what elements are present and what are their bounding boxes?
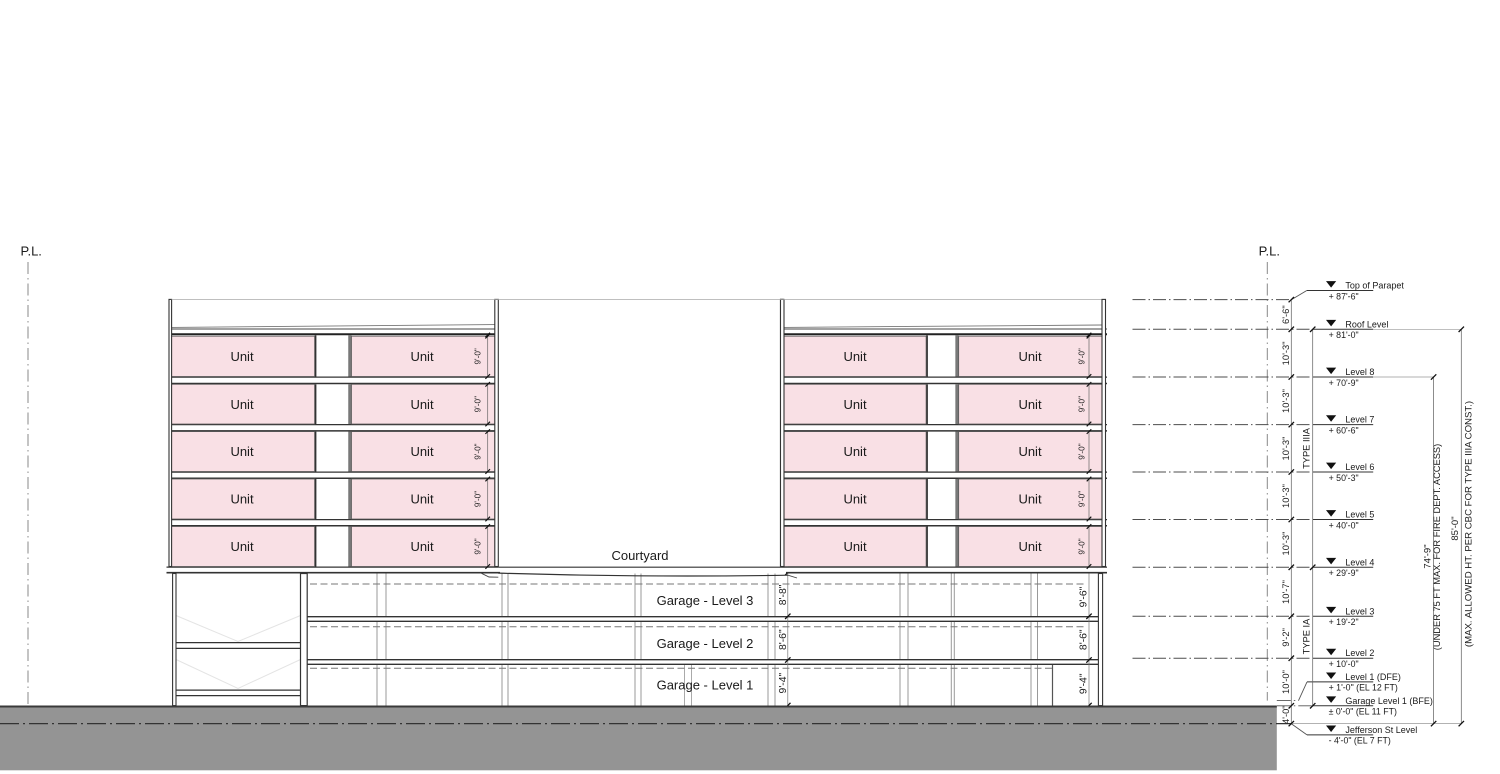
svg-text:8'-6": 8'-6" [778,629,789,650]
svg-text:Unit: Unit [843,397,867,412]
svg-text:Top of Parapet: Top of Parapet [1345,281,1404,291]
svg-text:10'-3": 10'-3" [1280,532,1291,556]
svg-text:9'-0": 9'-0" [1078,538,1087,554]
svg-text:+ 19'-2": + 19'-2" [1329,617,1359,627]
svg-text:10'-7": 10'-7" [1280,580,1291,604]
svg-text:9'-2": 9'-2" [1280,628,1291,647]
svg-text:Level 7: Level 7 [1345,415,1374,425]
svg-text:P.L.: P.L. [1259,244,1280,259]
svg-text:9'-0": 9'-0" [474,491,483,507]
svg-text:+ 60'-6": + 60'-6" [1329,425,1359,435]
svg-text:10'-3": 10'-3" [1280,437,1291,461]
svg-text:Level 3: Level 3 [1345,606,1374,616]
svg-text:9'-0": 9'-0" [1078,396,1087,412]
svg-text:Level 5: Level 5 [1345,510,1374,520]
svg-text:10'-3": 10'-3" [1280,389,1291,413]
svg-text:Unit: Unit [843,349,867,364]
svg-text:Level 6: Level 6 [1345,462,1374,472]
svg-text:9'-0": 9'-0" [474,396,483,412]
svg-text:+ 70'-9": + 70'-9" [1329,378,1359,388]
svg-text:Unit: Unit [843,492,867,507]
svg-text:Garage - Level 1: Garage - Level 1 [657,678,754,693]
svg-text:Unit: Unit [230,349,254,364]
svg-text:9'-4": 9'-4" [778,672,789,693]
svg-text:9'-0": 9'-0" [1078,443,1087,459]
svg-text:Unit: Unit [410,539,434,554]
svg-text:Level 8: Level 8 [1345,367,1374,377]
svg-text:9'-0": 9'-0" [1078,491,1087,507]
svg-text:Unit: Unit [410,492,434,507]
svg-text:9'-0": 9'-0" [1078,348,1087,364]
svg-text:9'-0": 9'-0" [474,538,483,554]
svg-text:Level 2: Level 2 [1345,648,1374,658]
svg-text:Unit: Unit [230,492,254,507]
svg-text:8'-6": 8'-6" [1079,629,1090,650]
svg-text:Roof Level: Roof Level [1345,319,1388,329]
svg-text:9'-4": 9'-4" [1079,673,1090,694]
svg-text:+ 29'-9": + 29'-9" [1329,568,1359,578]
svg-text:+ 10'-0": + 10'-0" [1329,659,1359,669]
svg-text:P.L.: P.L. [20,244,41,259]
svg-text:Courtyard: Courtyard [611,548,668,563]
svg-text:- 4'-0" (EL 7 FT): - 4'-0" (EL 7 FT) [1329,736,1391,746]
svg-text:10'-3": 10'-3" [1280,484,1291,508]
svg-text:9'-0": 9'-0" [474,348,483,364]
svg-text:Unit: Unit [843,444,867,459]
svg-text:85'-0": 85'-0" [1450,516,1461,540]
svg-text:10'-3": 10'-3" [1280,341,1291,365]
svg-text:+ 1'-0" (EL 12 FT): + 1'-0" (EL 12 FT) [1329,683,1398,693]
svg-text:Unit: Unit [1018,492,1042,507]
svg-text:(UNDER 75 FT MAX. FOR FIRE DEP: (UNDER 75 FT MAX. FOR FIRE DEPT. ACCESS) [1432,444,1442,650]
svg-text:9'-6": 9'-6" [1079,586,1090,607]
svg-text:+ 40'-0": + 40'-0" [1329,520,1359,530]
svg-text:Garage Level 1 (BFE): Garage Level 1 (BFE) [1345,696,1433,706]
svg-text:+ 87'-6": + 87'-6" [1329,291,1359,301]
svg-text:TYPE IIIA: TYPE IIIA [1301,427,1311,469]
svg-text:+ 50'-3": + 50'-3" [1329,473,1359,483]
svg-text:Unit: Unit [843,539,867,554]
svg-text:Level 4: Level 4 [1345,557,1374,567]
svg-text:Unit: Unit [230,539,254,554]
svg-text:TYPE IA: TYPE IA [1301,618,1311,654]
svg-text:Unit: Unit [1018,349,1042,364]
svg-text:10'-0": 10'-0" [1280,670,1291,694]
svg-text:Unit: Unit [1018,397,1042,412]
svg-text:Unit: Unit [410,444,434,459]
svg-text:(MAX. ALLOWED HT. PER CBC FOR: (MAX. ALLOWED HT. PER CBC FOR TYPE IIIA … [1464,401,1475,647]
svg-text:Unit: Unit [1018,444,1042,459]
svg-text:± 0'-0" (EL 11 FT): ± 0'-0" (EL 11 FT) [1329,707,1397,717]
svg-text:Unit: Unit [410,349,434,364]
svg-text:Unit: Unit [1018,539,1042,554]
svg-text:8'-8": 8'-8" [778,584,789,605]
svg-text:Jefferson St Level: Jefferson St Level [1345,725,1417,735]
svg-text:9'-0": 9'-0" [474,443,483,459]
svg-text:6'-6": 6'-6" [1280,305,1291,324]
svg-text:Garage - Level 2: Garage - Level 2 [657,636,754,651]
svg-text:Unit: Unit [410,397,434,412]
svg-text:Garage - Level 3: Garage - Level 3 [657,593,754,608]
svg-text:Level 1 (DFE): Level 1 (DFE) [1345,672,1401,682]
svg-text:Unit: Unit [230,444,254,459]
svg-text:4'-0": 4'-0" [1280,705,1291,724]
svg-text:Unit: Unit [230,397,254,412]
svg-text:+ 81'-0": + 81'-0" [1329,330,1359,340]
